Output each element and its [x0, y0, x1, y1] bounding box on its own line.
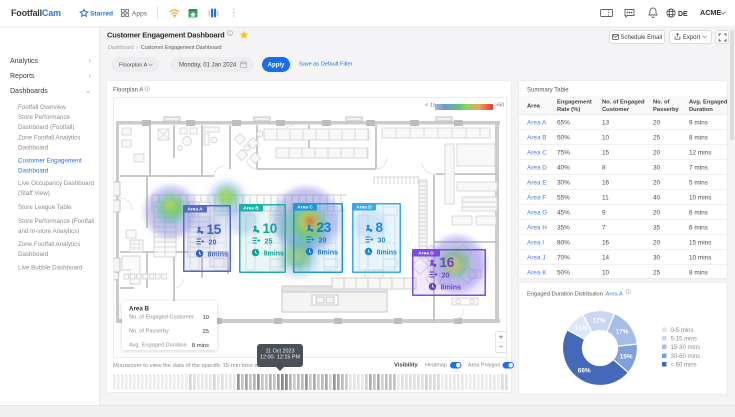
svg-text:11%: 11%: [575, 325, 588, 332]
svg-text:17%: 17%: [593, 318, 606, 325]
svg-text:15%: 15%: [620, 353, 633, 360]
svg-text:17%: 17%: [616, 329, 629, 336]
svg-text:66%: 66%: [578, 368, 591, 375]
